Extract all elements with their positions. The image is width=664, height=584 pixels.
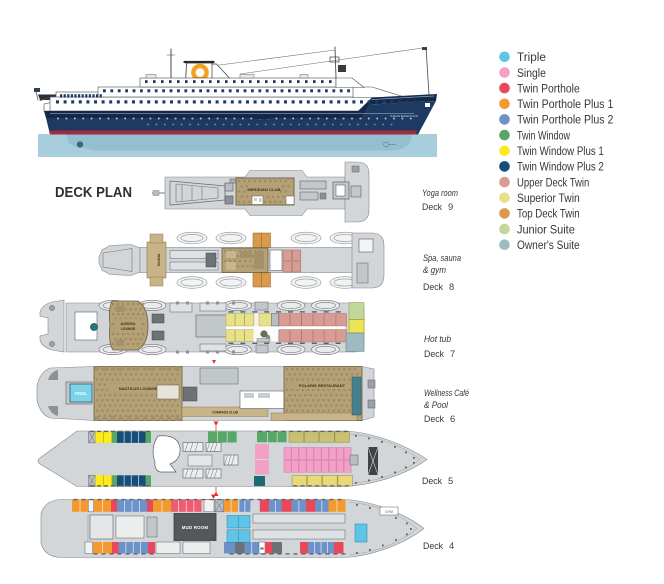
svg-text:Triple: Triple bbox=[517, 50, 546, 64]
svg-text:Twin Window Plus 2: Twin Window Plus 2 bbox=[517, 160, 604, 174]
svg-text:H: H bbox=[260, 546, 263, 551]
svg-text:Owner's Suite: Owner's Suite bbox=[517, 238, 580, 252]
svg-text:Deck: Deck bbox=[422, 201, 442, 212]
svg-text:POOL: POOL bbox=[75, 391, 87, 396]
svg-text:Deck: Deck bbox=[424, 348, 444, 359]
svg-text:& Pool: & Pool bbox=[424, 399, 449, 410]
svg-text:LOUNGE: LOUNGE bbox=[121, 327, 136, 331]
svg-text:8: 8 bbox=[449, 281, 454, 292]
svg-text:Deck: Deck bbox=[424, 413, 444, 424]
svg-text:NAUTILUS LOUNGE: NAUTILUS LOUNGE bbox=[119, 386, 158, 391]
svg-text:Deck: Deck bbox=[423, 540, 443, 551]
svg-text:Twin Porthole: Twin Porthole bbox=[517, 81, 580, 95]
svg-text:Twin Porthole Plus 1: Twin Porthole Plus 1 bbox=[517, 97, 613, 111]
svg-text:DECK PLAN: DECK PLAN bbox=[55, 185, 132, 201]
svg-text:Superior Twin: Superior Twin bbox=[517, 191, 580, 205]
svg-text:Spa, sauna: Spa, sauna bbox=[423, 252, 461, 263]
svg-text:GYM: GYM bbox=[385, 510, 393, 514]
svg-text:Junior Suite: Junior Suite bbox=[517, 222, 575, 236]
svg-text:Single: Single bbox=[517, 66, 546, 80]
svg-text:Wellness Café: Wellness Café bbox=[424, 387, 469, 398]
svg-text:7: 7 bbox=[450, 348, 455, 359]
svg-text:POLARIS RESTAURANT: POLARIS RESTAURANT bbox=[299, 383, 346, 388]
svg-text:SAUNA: SAUNA bbox=[157, 253, 161, 266]
svg-text:MUD ROOM: MUD ROOM bbox=[182, 525, 209, 530]
svg-text:Deck: Deck bbox=[423, 281, 443, 292]
svg-text:9: 9 bbox=[448, 201, 453, 212]
svg-text:6: 6 bbox=[450, 413, 455, 424]
svg-text:AURORA: AURORA bbox=[121, 322, 136, 326]
svg-text:Yoga room: Yoga room bbox=[422, 187, 458, 198]
svg-text:& gym: & gym bbox=[423, 264, 446, 275]
svg-text:COMPASS CLUB: COMPASS CLUB bbox=[212, 411, 238, 415]
svg-text:OCEAN ENDEAVOUR: OCEAN ENDEAVOUR bbox=[390, 114, 418, 118]
svg-text:Upper Deck Twin: Upper Deck Twin bbox=[517, 175, 589, 189]
svg-text:Twin Porthole Plus 2: Twin Porthole Plus 2 bbox=[517, 113, 613, 127]
svg-text:Top Deck Twin: Top Deck Twin bbox=[517, 207, 580, 221]
svg-text:Twin Window Plus 1: Twin Window Plus 1 bbox=[517, 144, 604, 158]
svg-text:Deck: Deck bbox=[422, 475, 442, 486]
svg-text:MERIDIAN CLUB: MERIDIAN CLUB bbox=[247, 187, 280, 192]
svg-text:Hot tub: Hot tub bbox=[424, 333, 451, 344]
svg-text:4: 4 bbox=[449, 540, 454, 551]
svg-text:Twin Window: Twin Window bbox=[517, 128, 570, 142]
svg-text:5: 5 bbox=[448, 475, 453, 486]
